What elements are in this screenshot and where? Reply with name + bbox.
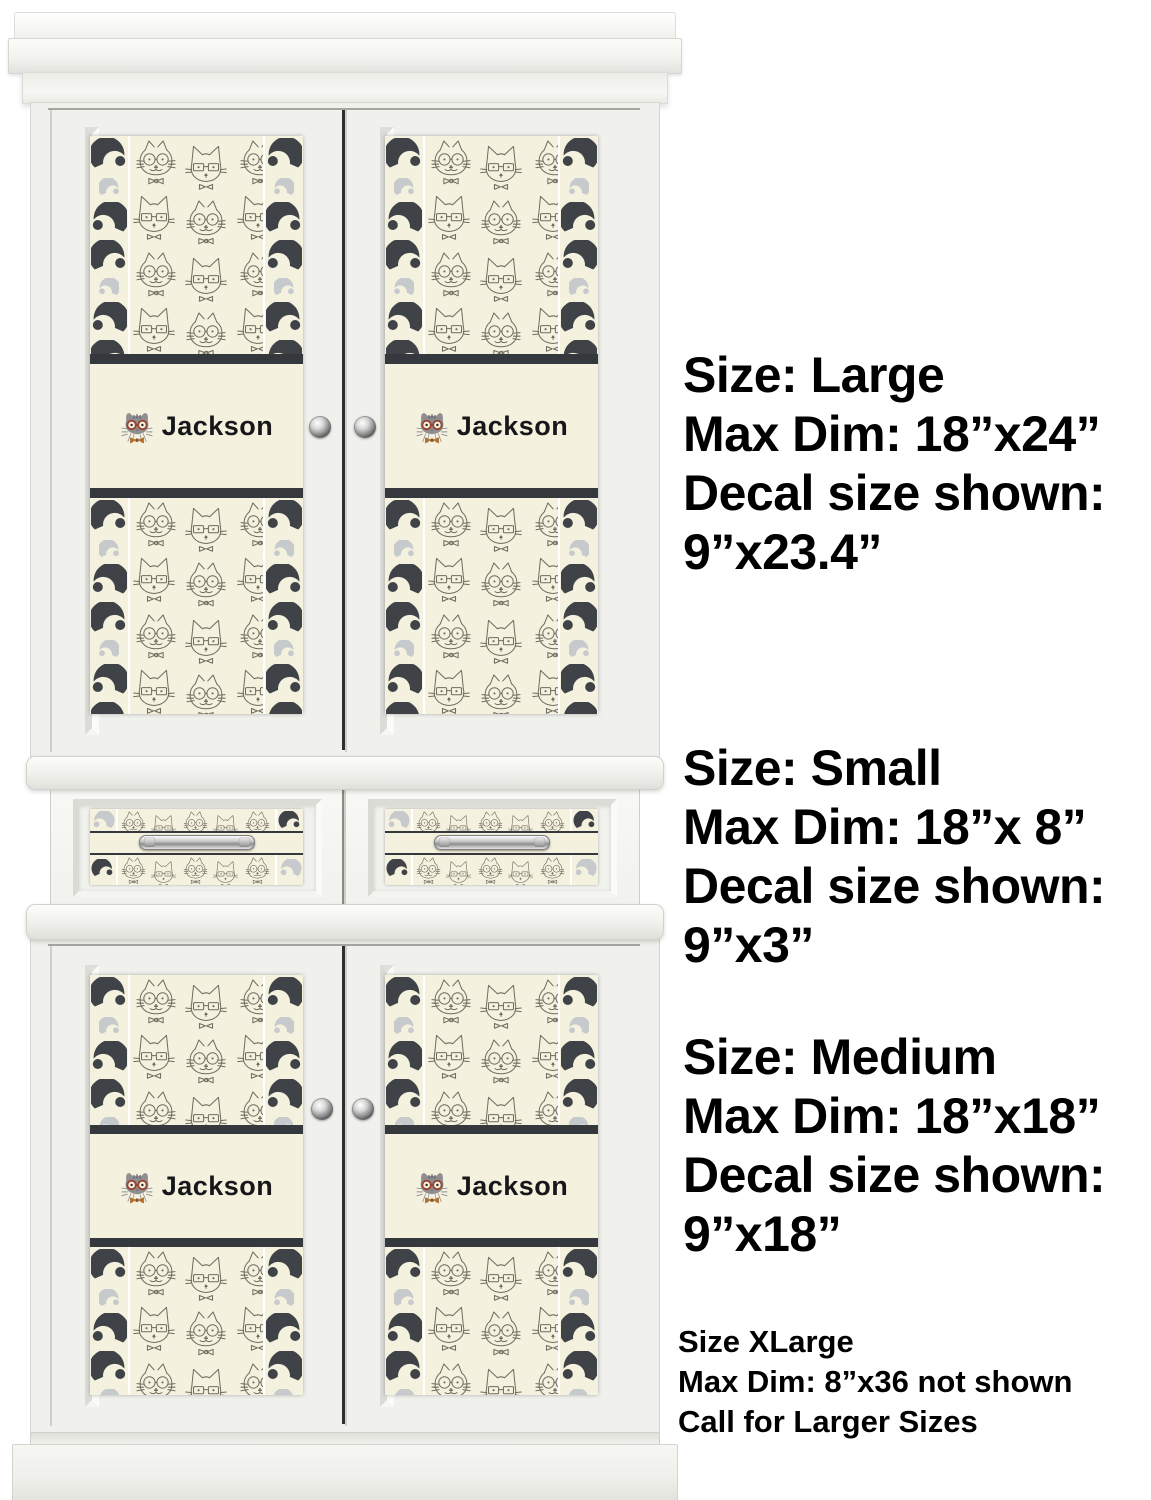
mid-molding-lower xyxy=(26,904,664,940)
decal-stripe xyxy=(385,1238,598,1247)
plinth-base xyxy=(12,1444,678,1500)
decal-stripe xyxy=(90,1238,303,1247)
max-dim-label: Max Dim: 18”x24” xyxy=(683,405,1105,464)
cat-pattern xyxy=(423,1247,560,1395)
mustache-column-icon xyxy=(385,1247,423,1395)
size-label: Size: Large xyxy=(683,346,1105,405)
lower-left-door-knob xyxy=(311,1098,333,1120)
call-larger-sizes: Call for Larger Sizes xyxy=(678,1402,1072,1442)
mustache-icon xyxy=(90,855,116,885)
max-dim-label: Max Dim: 18”x 8” xyxy=(683,798,1105,857)
door-decal-medium: Jackson xyxy=(385,975,598,1395)
mustache-column-icon xyxy=(265,1247,303,1395)
mustache-column-icon xyxy=(265,498,303,714)
decal-size-value: 9”x3” xyxy=(683,916,1105,975)
size-label: Size: Small xyxy=(683,739,1105,798)
mustache-column-icon xyxy=(385,498,423,714)
size-annotation-xlarge: Size XLarge Max Dim: 8”x36 not shown Cal… xyxy=(678,1322,1072,1442)
cat-pattern xyxy=(423,136,560,354)
mustache-column-icon xyxy=(90,975,128,1125)
crown-molding-top xyxy=(14,12,676,40)
decal-size-label: Decal size shown: xyxy=(683,1146,1105,1205)
upper-left-door xyxy=(50,110,52,752)
upper-door-gap xyxy=(342,110,345,750)
decal-stripe xyxy=(385,488,598,498)
mustache-column-icon xyxy=(265,136,303,354)
decal-stripe xyxy=(385,1125,598,1134)
size-annotation-medium: Size: Medium Max Dim: 18”x18” Decal size… xyxy=(683,1028,1105,1264)
cat-pattern xyxy=(116,809,277,831)
upper-right-door-knob xyxy=(354,416,376,438)
cat-pattern xyxy=(423,975,560,1125)
mustache-icon xyxy=(572,855,598,885)
lower-left-door xyxy=(50,946,52,1426)
cabinet: Jackson Jackson xyxy=(0,0,690,1500)
door-decal-medium: Jackson xyxy=(90,975,303,1395)
decal-name: Jackson xyxy=(162,1171,274,1202)
cat-pattern xyxy=(128,136,265,354)
mid-molding-upper xyxy=(26,756,664,790)
crown-molding-flare xyxy=(8,38,682,74)
decal-name: Jackson xyxy=(457,1171,569,1202)
cat-pattern xyxy=(128,1247,265,1395)
mustache-column-icon xyxy=(560,136,598,354)
size-label: Size XLarge xyxy=(678,1322,1072,1362)
mustache-column-icon xyxy=(385,136,423,354)
product-image: Jackson Jackson xyxy=(0,0,1151,1500)
mustache-column-icon xyxy=(90,498,128,714)
decal-size-label: Decal size shown: xyxy=(683,464,1105,523)
mustache-column-icon xyxy=(90,136,128,354)
lower-door-gap xyxy=(342,946,345,1424)
size-annotation-small: Size: Small Max Dim: 18”x 8” Decal size … xyxy=(683,739,1105,975)
decal-size-value: 9”x18” xyxy=(683,1205,1105,1264)
mustache-icon xyxy=(385,809,411,831)
mustache-column-icon xyxy=(560,1247,598,1395)
size-annotation-large: Size: Large Max Dim: 18”x24” Decal size … xyxy=(683,346,1105,582)
mustache-column-icon xyxy=(90,1247,128,1395)
decal-stripe xyxy=(90,488,303,498)
lower-right-door-knob xyxy=(352,1098,374,1120)
decal-stripe xyxy=(385,354,598,364)
decal-name: Jackson xyxy=(162,411,274,442)
decal-stripe xyxy=(90,1125,303,1134)
cat-pattern xyxy=(128,975,265,1125)
door-decal-large: Jackson xyxy=(385,136,598,714)
mustache-icon xyxy=(90,809,116,831)
mustache-icon xyxy=(277,809,303,831)
decal-name: Jackson xyxy=(457,411,569,442)
left-drawer-handle xyxy=(139,835,255,850)
hipster-cat-icon xyxy=(120,408,154,445)
mustache-icon xyxy=(572,809,598,831)
lower-right-door xyxy=(345,946,347,1426)
hipster-cat-icon xyxy=(415,1168,449,1205)
upper-left-door-knob xyxy=(309,416,331,438)
drawer-gap xyxy=(342,790,344,904)
cat-pattern xyxy=(423,498,560,714)
mustache-column-icon xyxy=(560,498,598,714)
decal-size-value: 9”x23.4” xyxy=(683,523,1105,582)
cat-pattern xyxy=(411,809,572,831)
mustache-column-icon xyxy=(560,975,598,1125)
right-drawer-handle xyxy=(434,835,550,850)
crown-molding-cove xyxy=(22,72,668,104)
mustache-column-icon xyxy=(265,975,303,1125)
cat-pattern xyxy=(128,498,265,714)
max-dim-label: Max Dim: 18”x18” xyxy=(683,1087,1105,1146)
mustache-column-icon xyxy=(385,975,423,1125)
size-label: Size: Medium xyxy=(683,1028,1105,1087)
door-decal-large: Jackson xyxy=(90,136,303,714)
hipster-cat-icon xyxy=(415,408,449,445)
mustache-icon xyxy=(277,855,303,885)
decal-size-label: Decal size shown: xyxy=(683,857,1105,916)
decal-stripe xyxy=(90,354,303,364)
mustache-icon xyxy=(385,855,411,885)
cat-pattern xyxy=(411,855,572,885)
cat-pattern xyxy=(116,855,277,885)
upper-right-door xyxy=(345,110,347,752)
hipster-cat-icon xyxy=(120,1168,154,1205)
max-dim-label: Max Dim: 8”x36 not shown xyxy=(678,1362,1072,1402)
